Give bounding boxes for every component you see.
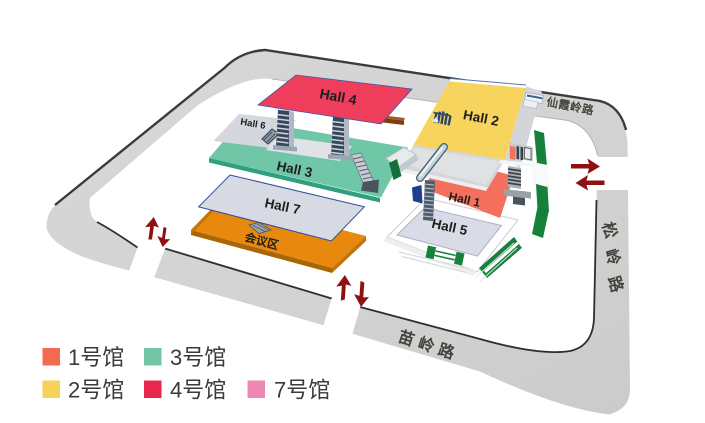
svg-text:3号馆: 3号馆 <box>170 345 226 370</box>
svg-text:4号馆: 4号馆 <box>170 378 226 403</box>
svg-text:7号馆: 7号馆 <box>274 378 330 403</box>
svg-text:2号馆: 2号馆 <box>68 378 124 403</box>
svg-text:1号馆: 1号馆 <box>68 345 124 370</box>
